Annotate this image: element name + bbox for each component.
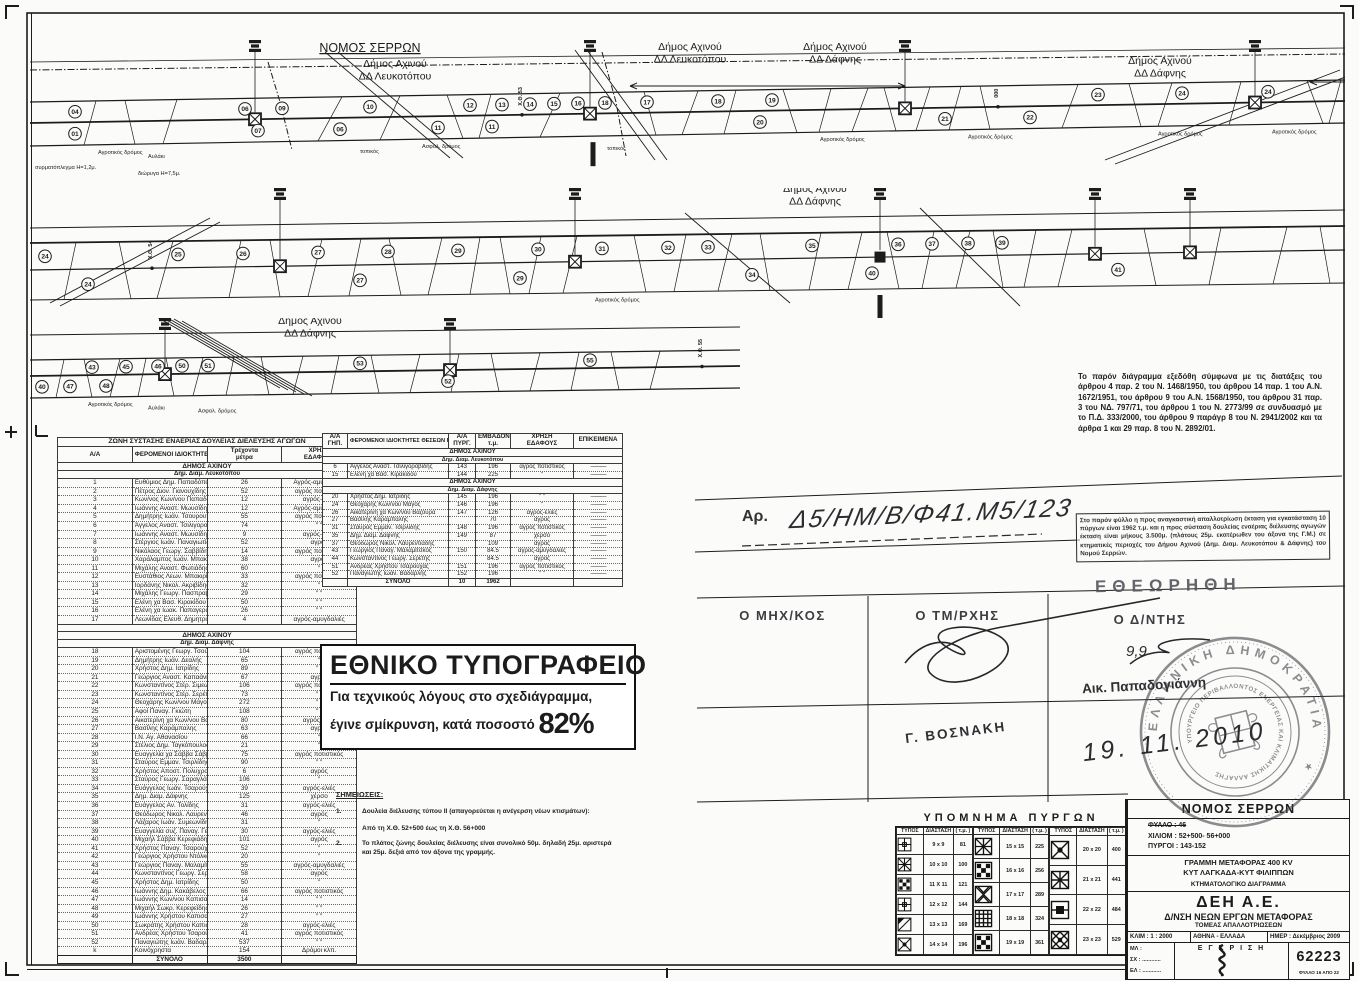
reduction-title: ΕΘΝΙΚΟ ΤΥΠΟΓΡΑΦΕΙΟ — [330, 650, 626, 685]
svg-text:30: 30 — [534, 247, 542, 254]
svg-text:19: 19 — [768, 97, 776, 104]
tower-row: 52Παναγιώτης Ιωάν. Βαδαρλής152196″ ″——— — [323, 571, 623, 579]
svg-text:Αγροτικός δρόμος: Αγροτικός δρόμος — [820, 136, 865, 143]
tower-row: 20Χρήστος Δημ. Ιατρίδης145196″ ″——— — [323, 494, 623, 502]
owner-row: 28Ι.Ν. Αγ. Αθανασίου66″ — [58, 733, 357, 742]
svg-text:Αγροτικός δρόμος: Αγροτικός δρόμος — [98, 149, 143, 156]
reduction-percent: 82% — [539, 708, 594, 740]
owner-row: 37Θεόδωρος Νικολ. Λαυρεντιάδης46αγρός — [58, 810, 357, 819]
owner-row: 42Γεώργιος Χρήστου Ντόλκος20″ — [58, 853, 357, 862]
owner-row: 6Άγγελος Αναστ. Τσιλιγοροβίδης74″ ″ — [58, 522, 357, 531]
owner-row: 18Αριστομένης Γεωργ. Τσούκος104αγρός ποτ… — [58, 648, 357, 657]
easement-table-title: ΖΩΝΗ ΣΥΣΤΑΣΗΣ ΕΝΑΕΡΙΑΣ ΔΟΥΛΕΙΑΣ ΔΙΕΛΕΥΣΗ… — [58, 438, 357, 447]
owner-row: 10Χαράλαμπος Ιωάν. Μπακιρίδης38αγρός — [58, 556, 357, 565]
svg-text:Χ.Θ. 53: Χ.Θ. 53 — [518, 87, 524, 106]
svg-text:06: 06 — [241, 106, 249, 113]
tower-type-row: 13 x 13169 — [897, 915, 973, 935]
svg-text:22: 22 — [1026, 115, 1034, 122]
legal-basis-text: Το παρόν διάγραμμα εξεδόθη σύμφωνα με τι… — [1078, 372, 1322, 434]
svg-text:47: 47 — [66, 384, 74, 391]
tower-type-row: 17 x 17289 — [973, 883, 1049, 907]
expropriation-note: Στο παρόν φύλλο η προς αναγκαστική απαλλ… — [1076, 511, 1330, 563]
owner-row: 13Ιορδάνης Νικολ. Ακριβίδης32″ — [58, 581, 357, 590]
svg-text:25: 25 — [174, 252, 182, 259]
table-section-row: Δημ. Διαμ. Λευκοτόπου — [323, 456, 623, 463]
easement-owners-table: ΖΩΝΗ ΣΥΣΤΑΣΗΣ ΕΝΑΕΡΙΑΣ ΔΟΥΛΕΙΑΣ ΔΙΕΛΕΥΣΗ… — [57, 437, 357, 964]
owner-row: 30Ευαγγελία χα Σάββα Σάββα75αγρός ποτιστ… — [58, 750, 357, 759]
svg-text:51: 51 — [204, 363, 212, 370]
owner-row: 22Κωνσταντίνος Στέρ. Σιμεωνίδης106αγρός … — [58, 682, 357, 691]
tower-row: 26Αικατερίνη χα Κων/νου Βαζούρα147126αγρ… — [323, 509, 623, 517]
svg-text:000: 000 — [994, 89, 1000, 98]
tower-type-row: 15 x 15225 — [973, 835, 1049, 859]
svg-text:46: 46 — [154, 363, 162, 370]
tower-legend-title: ΥΠΟΜΝΗΜΑ ΠΥΡΓΩΝ — [895, 812, 1127, 824]
survey-strip-3: 4345465051535540474852Δήμος ΑχινούΔΔ Δάφ… — [30, 318, 740, 433]
owner-row: 25Αφοί Παναγ. Γκιώτη108″ ″ — [58, 708, 357, 717]
owner-row: 39Ευαγγελία συζ. Παναγ. Γεωργάκου30αγρός… — [58, 827, 357, 836]
owner-row: 45Χρήστος Δημ. Ιατρίδης50″ — [58, 878, 357, 887]
owner-row: 50Σωκράτης Χρήστου Καπισανούδης28αγρός-ε… — [58, 921, 357, 930]
svg-text:Αυλάκι: Αυλάκι — [148, 404, 166, 411]
svg-text:09: 09 — [278, 106, 286, 113]
owner-row: 24Θεοχάρης Κων/νου Μάγος272″ ″ — [58, 699, 357, 708]
tower-type-row: 16 x 16256 — [973, 859, 1049, 883]
svg-text:Αγροτικός δρόμος: Αγροτικός δρόμος — [1158, 130, 1203, 137]
owner-row: 12Ευστάθιος Λεων. Μπακιρίδης33αγρός ποτι… — [58, 573, 357, 582]
tower-type-row: 21 x 21441 — [1050, 865, 1126, 895]
svg-text:26: 26 — [239, 251, 247, 258]
owner-row: 17Λεωνίδας Ελευθ. Δημητριάδης4αγρός-αμυγ… — [58, 616, 357, 625]
svg-text:Δήμος Αχινού: Δήμος Αχινού — [278, 318, 342, 327]
tower-owners-table: Α/ΑΓΗΠ.ΦΕΡΟΜΕΝΟΙ ΙΔΙΟΚΤΗΤΕΣ ΘΕΣΕΩΝ ΠΥΡΓΩ… — [322, 433, 623, 587]
approval-cell: Ε Γ Κ Ρ Ι Σ Η — [1175, 943, 1289, 979]
svg-text:53: 53 — [356, 361, 364, 368]
svg-text:32: 32 — [664, 245, 672, 252]
table-section-row: Δημ. Διαμ. Δάφνης — [58, 640, 357, 648]
table-section-row: ΔΗΜΟΣ ΑΧΙΝΟΥ — [323, 448, 623, 456]
table-section-row: ΔΗΜΟΣ ΑΧΙΝΟΥ — [58, 631, 357, 640]
svg-text:28: 28 — [384, 249, 392, 256]
svg-text:27: 27 — [314, 250, 322, 257]
owner-row: 5Δημήτρης Ιωάν. Τσουρουπίδης55αγρός ποτι… — [58, 513, 357, 522]
svg-text:ΔΔ Δάφνης: ΔΔ Δάφνης — [1134, 68, 1186, 80]
tower-row: 43Γεώργιος Παναγ. Μαλαμίτσκος15084.5αγρό… — [323, 548, 623, 556]
owner-row: 16Ελένη χα Ιωακ. Παπαγερασίμου26″ ″ — [58, 607, 357, 616]
svg-text:27: 27 — [356, 278, 364, 285]
owner-row: 52Παναγιώτης Ιωάν. Βαδαρλής537″ ″ — [58, 938, 357, 947]
svg-text:Αυλάκι: Αυλάκι — [148, 153, 166, 160]
svg-text:Αγροτικός δρόμος: Αγροτικός δρόμος — [1272, 128, 1317, 135]
owner-row: 36Ευάγγελος Αν. Τολίδης31αγρός-ελιές — [58, 802, 357, 811]
tower-row: 15Ελένη χα Βασ. Κιρακίδου144225″——— — [323, 471, 623, 479]
tower-type-row: 12 x 12144 — [897, 895, 973, 915]
owner-row: 15Ελένη χα Βασ. Κιρακίδου50″ ″ — [58, 598, 357, 607]
svg-text:55: 55 — [586, 357, 594, 364]
svg-text:39: 39 — [998, 240, 1006, 247]
owner-row: 46Ιωάννης Δημ. Κακάβελος66αγρός ποτιστικ… — [58, 887, 357, 896]
tower-type-row: 18 x 18324 — [973, 907, 1049, 931]
svg-text:Ασφαλ. δρόμος: Ασφαλ. δρόμος — [422, 143, 461, 150]
svg-text:ΝΟΜΟΣ ΣΕΡΡΩΝ: ΝΟΜΟΣ ΣΕΡΡΩΝ — [319, 41, 420, 55]
svg-text:40: 40 — [868, 270, 876, 277]
owner-row: 4Ιωάννης Αναστ. Μωυσίδης12Αγρός-αμυγδαλι… — [58, 504, 357, 513]
tower-type-row: 19 x 19361 — [973, 931, 1049, 955]
owner-row: 34Ευάγγελος Ιωάν. Τσαρούχας39αγρός-ελιές — [58, 784, 357, 793]
tower-row: 37Θεόδωρος Νικολ. Λαυρεντιάδης109αγρός——… — [323, 540, 623, 548]
svg-text:01: 01 — [71, 131, 79, 138]
svg-text:Χ.Θ. 54: Χ.Θ. 54 — [148, 240, 154, 260]
owner-row: 35Δημ. Διαμ. Δάφνης125χέρσο — [58, 793, 357, 802]
tower-type-row: 9 x 981 — [897, 835, 973, 855]
svg-text:21: 21 — [941, 116, 949, 123]
tower-type-row: 14 x 14196 — [897, 935, 973, 955]
svg-text:52: 52 — [444, 378, 452, 385]
etheorithi-stamp-text: ΕΘΕΩΡΗΘΗ — [1095, 575, 1242, 598]
owner-row: 43Γεώργιος Παναγ. Μαλαμίτσκος55αγρός-αμυ… — [58, 861, 357, 870]
svg-text:24: 24 — [1264, 89, 1272, 96]
svg-text:45: 45 — [122, 364, 130, 371]
owner-row: 48Μιχαήλ Σωκρ. Κερεφείδης26″ ″ — [58, 904, 357, 913]
svg-text:18: 18 — [601, 100, 609, 107]
engineer-heading: Ο ΜΗΧ/ΚΟΣ — [700, 608, 865, 623]
svg-text:ΔΔ Δάφνης: ΔΔ Δάφνης — [809, 54, 861, 66]
owner-row: 29Στέλιος Δημ. Ταγκόπουλος21″ — [58, 742, 357, 751]
svg-text:Ασφαλ. δρόμος: Ασφαλ. δρόμος — [198, 408, 237, 415]
owner-row: 33Σταύρος Γεωργ. Σαραγλάκης106″ — [58, 776, 357, 785]
table-total-row: ΣΥΝΟΛΟ3500 — [58, 955, 357, 964]
svg-text:13: 13 — [498, 102, 506, 109]
svg-text:34: 34 — [748, 272, 756, 279]
survey-strip-2: 2425262728293031323335363738392427293440… — [30, 188, 1345, 318]
svg-text:24: 24 — [84, 281, 92, 288]
owner-row: 31Σταύρος Εμμαν. Τσιρλίδης90″ ″ — [58, 759, 357, 768]
svg-text:11: 11 — [489, 124, 496, 131]
svg-text:24: 24 — [1178, 91, 1186, 98]
svg-text:37: 37 — [928, 241, 936, 248]
drawing-number: 62223 — [1289, 943, 1349, 965]
svg-text:17: 17 — [643, 99, 651, 106]
owner-row: 41Χρήστος Παναγ. Τσαρούχας52″ — [58, 844, 357, 853]
owner-row: 44Κωνσταντίνος Γεωργ. Σερέτης58αγρός — [58, 870, 357, 879]
registration-label: Αρ. — [742, 508, 768, 526]
svg-text:τοπικός: τοπικός — [607, 145, 626, 152]
svg-text:Δήμος Αχινού: Δήμος Αχινού — [803, 41, 867, 53]
owner-row: 7Ιωάννης Αναστ. Μωυσίδης9αγρός-ελιές — [58, 530, 357, 539]
owner-row: 19Δημήτρης Ιωάν. Δεαλής65″ — [58, 656, 357, 665]
svg-text:06: 06 — [336, 126, 344, 133]
svg-text:11: 11 — [435, 125, 442, 132]
svg-text:35: 35 — [808, 243, 816, 250]
svg-text:διώρυγα Η=7,5μ.: διώρυγα Η=7,5μ. — [138, 171, 181, 177]
drawing-number-cell: 62223 ΦΥΛΛΟ 16 ΑΠΟ 22 — [1289, 943, 1349, 979]
tower-type-row: 20 x 20400 — [1050, 835, 1126, 865]
svg-text:συρματόπλεγμα Η=1,2μ.: συρματόπλεγμα Η=1,2μ. — [35, 164, 97, 171]
tower-row: 51Ανδρέας Χρήστου Τσαρούχας151196αγρός π… — [323, 563, 623, 571]
svg-text:Αγροτικός δρόμος: Αγροτικός δρόμος — [88, 401, 133, 408]
svg-text:ΔΔ Λευκοτόπου: ΔΔ Λευκοτόπου — [359, 71, 432, 83]
svg-text:29: 29 — [454, 248, 462, 255]
svg-text:24: 24 — [41, 254, 49, 261]
tower-legend: ΥΠΟΜΝΗΜΑ ΠΥΡΓΩΝ ΤΥΠΟΣΔΙΑΣΤΑΣΗ( τ.μ. )9 x… — [895, 812, 1127, 956]
svg-text:ΔΔ Λευκοτόπου: ΔΔ Λευκοτόπου — [654, 54, 727, 66]
owner-row: 2Πέτρος Διον. Γιανουχίδης52αγρός ποτιστι… — [58, 487, 357, 496]
svg-text:★: ★ — [1299, 758, 1316, 775]
svg-text:23: 23 — [1094, 92, 1102, 99]
owner-row: 23Κωνσταντίνος Στέρ. Σερέτης73″ ″ — [58, 690, 357, 699]
director-heading: Ο Δ/ΝΤΗΣ — [1075, 612, 1225, 627]
tower-row: 24Θεοχάρης Κων/νου Μάγος146196″——— — [323, 501, 623, 509]
notes-title: ΣΗΜΕΙΩΣΕΙΣ: — [336, 790, 622, 800]
table-section-row: Δημ. Διαμ. Λευκοτόπου — [58, 471, 357, 479]
svg-text:14: 14 — [526, 101, 534, 108]
scanned-cadastral-sheet: 0406091012131415161817181923242401070611… — [0, 0, 1359, 981]
svg-text:43: 43 — [88, 364, 96, 371]
owner-row: 11Μιχάλης Αναστ. Φωτιάδης60″ — [58, 564, 357, 573]
owner-row: 27Βασίλης Καράμπαλης63αγρός — [58, 725, 357, 734]
svg-text:18: 18 — [714, 98, 722, 105]
svg-text:Αγροτικός δρόμος: Αγροτικός δρόμος — [595, 297, 640, 304]
title-block-footer: ΜΛ : ΣΧ : ............ ΕΛ : ............… — [1128, 943, 1349, 979]
title-block-company: ΔΕΗ Α.Ε. Δ/ΝΣΗ ΝΕΩΝ ΕΡΓΩΝ ΜΕΤΑΦΟΡΑΣ ΤΟΜΕ… — [1128, 892, 1349, 932]
owner-row: 38Λάζαρος Ιωάν. Συμεωνίδης31″ — [58, 819, 357, 828]
tower-type-row: 10 x 10100 — [897, 855, 973, 875]
svg-text:15: 15 — [550, 101, 558, 108]
tower-row: 6Άγγελος Αναστ. Τσιλιγοροβίδης143196αγρό… — [323, 463, 623, 471]
owner-row: 47Ιωάννης Κων/νου Καπισανούδης14″ ″ — [58, 896, 357, 905]
svg-text:ΔΔ Δάφνης: ΔΔ Δάφνης — [284, 328, 336, 340]
notes-block: ΣΗΜΕΙΩΣΕΙΣ: 1. Δουλεία διέλευσης τύπου Ι… — [336, 790, 622, 864]
tower-row: 44Κωνσταντίνος Γεωργ. Σερέτης84.5αγρός——… — [323, 556, 623, 564]
svg-text:Δήμος Αχινού: Δήμος Αχινού — [658, 41, 722, 53]
section-head-heading: Ο ΤΜ/ΡΧΗΣ — [875, 608, 1040, 623]
owner-row: 40Μιχαήλ Σάββα Κερεφιάδης101αγρός — [58, 836, 357, 845]
tower-row: 31Σταύρος Εμμαν. Τσιρλίδης148196αγρός πο… — [323, 525, 623, 533]
svg-text:Χ.Θ. 55: Χ.Θ. 55 — [698, 339, 704, 358]
tower-type-row: 23 x 23529 — [1050, 925, 1126, 955]
svg-text:Αγροτικός δρόμος: Αγροτικός δρόμος — [968, 134, 1013, 141]
svg-text:33: 33 — [704, 244, 712, 251]
tower-legend-group: ΤΥΠΟΣΔΙΑΣΤΑΣΗ( τ.μ. )20 x 2040021 x 2144… — [1049, 827, 1126, 955]
svg-text:40: 40 — [38, 384, 46, 391]
tower-row: 27Βασίλης Καράμπαλης70αγρός——— — [323, 517, 623, 525]
handwritten-99: 9,9 — [1126, 643, 1147, 660]
svg-text:12: 12 — [466, 102, 474, 109]
svg-text:29: 29 — [516, 275, 524, 282]
owner-row: 3Κων/νος Κων/νου Παπαδόπουλος12αγρός-ελι… — [58, 496, 357, 505]
owner-row: 14Μιχάλης Γεωργ. Πασπραβίδης29″ ″ — [58, 590, 357, 599]
table-total-row: ΣΥΝΟΛΟ101962 — [323, 579, 623, 587]
svg-text:41: 41 — [1114, 267, 1122, 274]
table-section-row: ΔΗΜΟΣ ΑΧΙΝΟΥ — [58, 462, 357, 471]
svg-text:04: 04 — [71, 109, 79, 116]
svg-text:10: 10 — [366, 104, 374, 111]
owner-row: 21Γεώργιος Αναστ. Καπαάνης67αγρός — [58, 673, 357, 682]
owner-row: 49Ιωάννης Χρήστου Καπισανούδης27″ ″ — [58, 913, 357, 922]
svg-text:Δήμος Αχινού: Δήμος Αχινού — [1128, 55, 1192, 67]
tower-legend-group: ΤΥΠΟΣΔΙΑΣΤΑΣΗ( τ.μ. )15 x 1522516 x 1625… — [973, 827, 1050, 955]
owner-row: 32Χρήστος Αποστ. Πολυχρονίδης6αγρός — [58, 767, 357, 776]
owner-row: 8Στέργιος Ιωάν. Παναγιωτίδης52αγρός — [58, 539, 357, 548]
tower-type-row: 11 X 11121 — [897, 875, 973, 895]
svg-text:Δήμος Αχινού: Δήμος Αχινού — [363, 58, 427, 70]
title-block-meta: ΚΛΙΜ : 1 : 2000 ΑΘΗΝΑ - ΕΛΛΑΔΑ ΗΜΕΡ : Δε… — [1128, 932, 1349, 943]
reduction-notice: ΕΘΝΙΚΟ ΤΥΠΟΓΡΑΦΕΙΟ Για τεχνικούς λόγους … — [320, 644, 636, 750]
owner-row: 9Νικόλαος Γεωργ. Σαββίδης14αγρός ποτιστι… — [58, 547, 357, 556]
approval-signature — [1203, 943, 1243, 977]
svg-text:ΔΔ Δάφνης: ΔΔ Δάφνης — [789, 196, 841, 208]
svg-text:31: 31 — [598, 246, 606, 253]
tower-row: 35Δημ. Διαμ. Δάφνης14987χέρσο——— — [323, 532, 623, 540]
table-section-row: Δημ. Διαμ. Δάφνης — [323, 487, 623, 494]
owner-row: 1Ευθύμιος Δημ. Παπαδόπουλος26Αγρός-αμυγδ… — [58, 479, 357, 488]
owner-row: 26Αικατερίνη χα Κων/νου Βαζούρα80αγρός-ε… — [58, 716, 357, 725]
reduction-body: Για τεχνικούς λόγους στο σχεδιάγραμμα, έ… — [330, 689, 626, 742]
svg-text:Δήμος Αχινού: Δήμος Αχινού — [783, 188, 847, 195]
svg-text:36: 36 — [894, 242, 902, 249]
svg-text:16: 16 — [574, 101, 582, 108]
svg-text:50: 50 — [178, 363, 186, 370]
svg-text:38: 38 — [964, 241, 972, 248]
table-section-row: ΔΗΜΟΣ ΑΧΙΝΟΥ — [323, 479, 623, 487]
survey-strip-1: 0406091012131415161817181923242401070611… — [30, 40, 1345, 180]
owner-row: 20Χρήστος Δημ. Ιατρίδης89″ ″ — [58, 665, 357, 674]
svg-text:τοπικός: τοπικός — [360, 148, 379, 155]
tower-legend-group: ΤΥΠΟΣΔΙΑΣΤΑΣΗ( τ.μ. )9 x 98110 x 1010011… — [896, 827, 973, 955]
svg-text:20: 20 — [756, 119, 764, 126]
owner-row: 51Ανδρέας Χρήστου Τσαρούχας41αγρός ποτισ… — [58, 930, 357, 939]
owner-row: kΚοινόχρηστα154Δρόμοι κλπ. — [58, 947, 357, 956]
tower-type-row: 22 x 22484 — [1050, 895, 1126, 925]
svg-text:07: 07 — [254, 128, 262, 135]
svg-text:48: 48 — [102, 383, 110, 390]
